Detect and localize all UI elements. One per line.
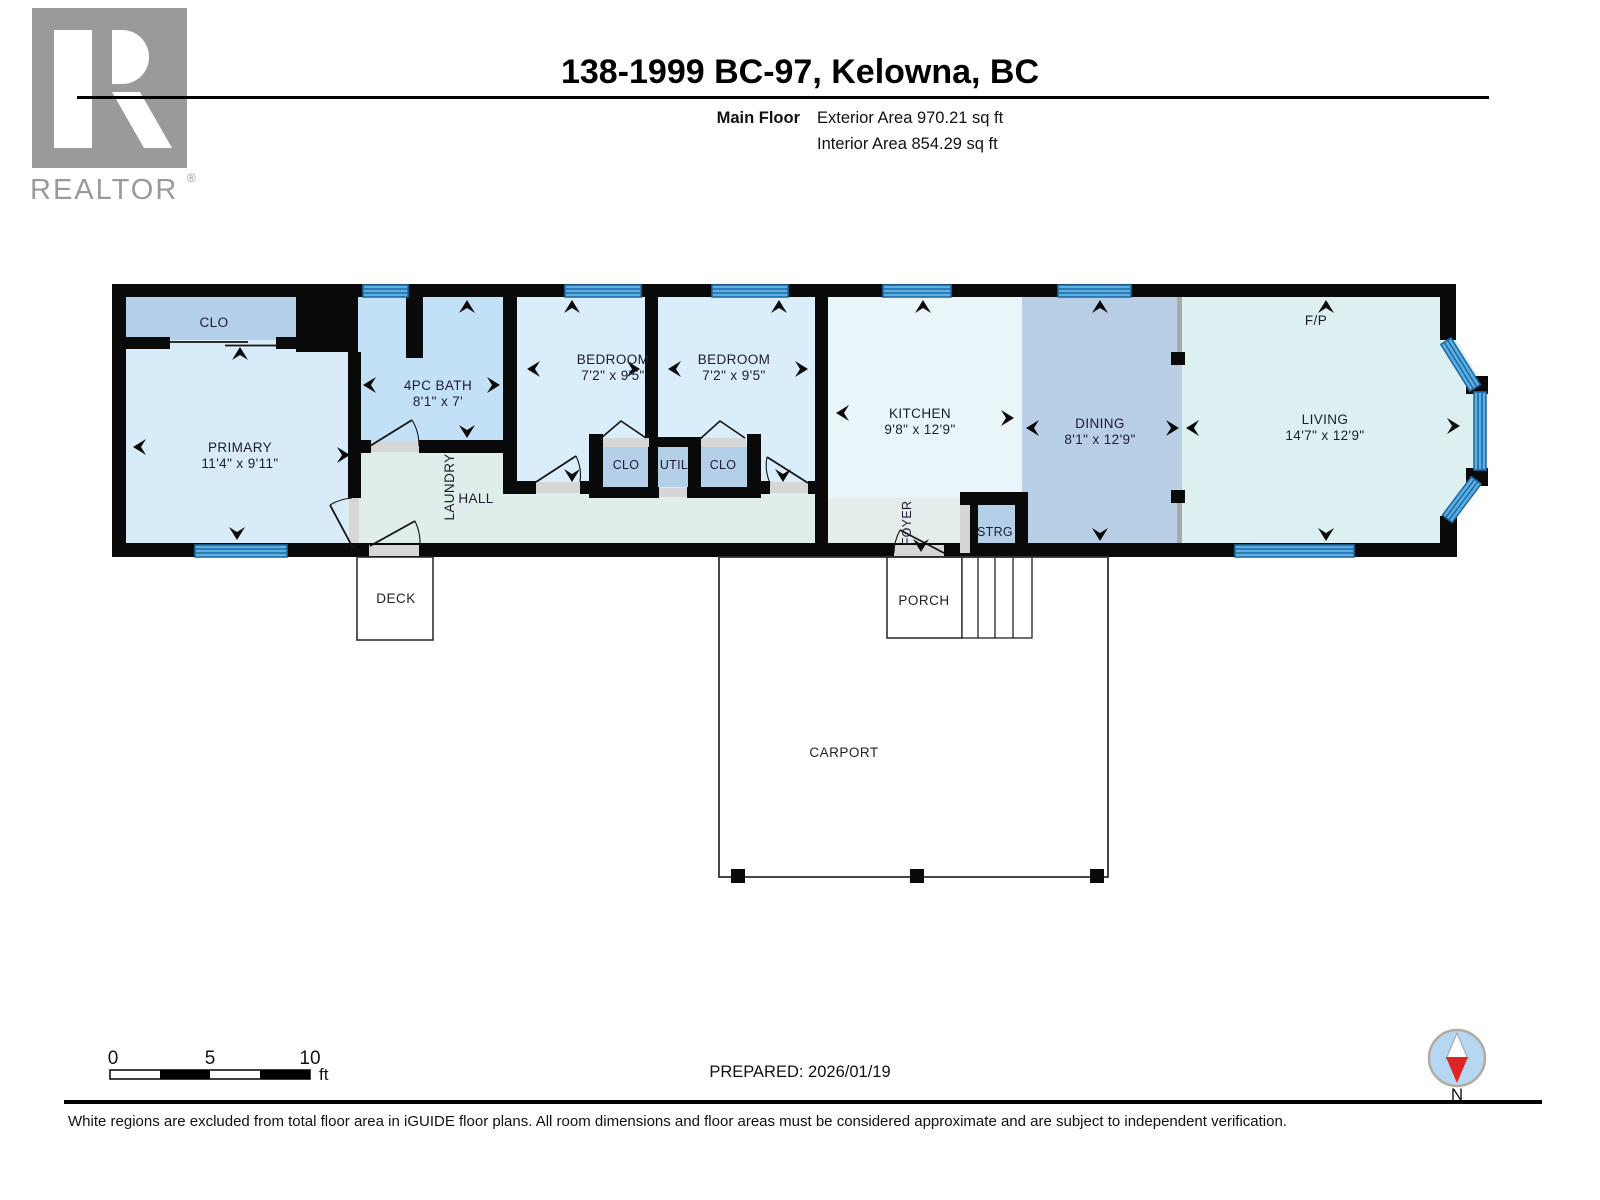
wall-segment xyxy=(419,440,503,453)
room-dims-kitchen: 9'8" x 12'9" xyxy=(884,422,955,437)
outdoor-structures xyxy=(357,557,1108,883)
room-label-foyer: FOYER xyxy=(900,501,914,546)
wall-segment xyxy=(503,284,517,494)
room-label-util: UTIL xyxy=(660,458,688,472)
carport-label: CARPORT xyxy=(809,745,878,760)
room-fill-foyer xyxy=(828,498,962,545)
room-label-clo2: CLO xyxy=(710,458,737,472)
room-label-laundry: LAUNDRY xyxy=(442,453,457,520)
room-label-bedroom1: BEDROOM xyxy=(577,352,650,367)
wall-segment xyxy=(296,284,358,352)
column-line xyxy=(1177,503,1182,543)
bay-window xyxy=(1474,392,1486,470)
wall-segment xyxy=(348,352,361,498)
door-threshold xyxy=(369,545,419,556)
floorplan-page: REALTOR ® 138-1999 BC-97, Kelowna, BC Ma… xyxy=(0,0,1600,1200)
room-label-primary: PRIMARY xyxy=(208,440,272,455)
wall-segment xyxy=(1015,505,1028,557)
wall-post xyxy=(1171,490,1185,503)
scale-unit: ft xyxy=(319,1065,329,1084)
title-rule xyxy=(77,96,1489,99)
logo-registered-mark: ® xyxy=(187,171,196,185)
scale-bar-segment xyxy=(160,1070,210,1079)
interior-area: Interior Area 854.29 sq ft xyxy=(817,135,998,153)
door-threshold xyxy=(659,488,687,497)
scale-tick-0: 0 xyxy=(108,1048,119,1069)
room-label-clo1: CLO xyxy=(613,458,640,472)
scale-bar: 0 5 10 ft xyxy=(108,1048,329,1084)
wall-segment xyxy=(589,487,659,498)
wall-segment xyxy=(808,481,815,494)
wall-segment xyxy=(687,487,761,498)
wall-segment xyxy=(1440,284,1456,340)
post xyxy=(1090,869,1104,883)
window xyxy=(363,285,408,297)
footer-rule xyxy=(64,1100,1542,1104)
room-label-kitchen: KITCHEN xyxy=(889,406,951,421)
exterior-area: Exterior Area 970.21 sq ft xyxy=(817,109,1004,127)
stairs xyxy=(962,557,1032,638)
wall-segment xyxy=(276,337,298,349)
window xyxy=(1058,285,1131,297)
logo-brand: REALTOR xyxy=(30,174,178,206)
room-label-dining: DINING xyxy=(1075,416,1125,431)
door-threshold xyxy=(371,441,419,452)
window xyxy=(195,545,287,557)
room-label-clo-primary: CLO xyxy=(200,315,229,330)
scale-tick-10: 10 xyxy=(299,1048,320,1069)
door-threshold xyxy=(349,498,359,543)
window xyxy=(883,285,951,297)
door-threshold xyxy=(701,438,746,447)
room-label-strg: STRG xyxy=(977,525,1013,539)
floorplan-canvas: REALTOR ® 138-1999 BC-97, Kelowna, BC Ma… xyxy=(0,0,1600,1200)
room-dims-dining: 8'1" x 12'9" xyxy=(1064,432,1135,447)
scale-tick-5: 5 xyxy=(205,1048,216,1069)
post xyxy=(731,869,745,883)
window xyxy=(712,285,788,297)
realtor-logo-r-stem xyxy=(54,30,92,148)
room-dims-living: 14'7" x 12'9" xyxy=(1285,428,1364,443)
wall-segment xyxy=(358,440,371,453)
room-fill-bath xyxy=(358,290,506,442)
wall-segment xyxy=(406,296,423,358)
room-label-hall: HALL xyxy=(458,491,493,506)
room-label-bedroom2: BEDROOM xyxy=(698,352,771,367)
door-threshold xyxy=(770,482,808,493)
room-dims-bath: 8'1" x 7' xyxy=(413,394,463,409)
room-dims-bedroom1: 7'2" x 9'5" xyxy=(581,368,644,383)
window xyxy=(565,285,641,297)
room-dims-primary: 11'4" x 9'11" xyxy=(201,456,278,471)
compass: N xyxy=(1429,1030,1485,1104)
wall-segment xyxy=(1440,516,1457,557)
door-threshold xyxy=(536,482,580,493)
fireplace-label: F/P xyxy=(1305,313,1327,328)
post xyxy=(910,869,924,883)
header: REALTOR ® 138-1999 BC-97, Kelowna, BC Ma… xyxy=(30,8,1489,206)
deck-label: DECK xyxy=(376,591,416,606)
prepared-date: PREPARED: 2026/01/19 xyxy=(709,1063,890,1081)
wall-segment xyxy=(815,284,828,557)
scale-bar-segment xyxy=(260,1070,310,1079)
wall-segment xyxy=(126,337,170,349)
wall-segment xyxy=(960,492,1028,505)
carport-posts xyxy=(731,869,1104,883)
realtor-logo: REALTOR ® xyxy=(30,8,196,206)
footer: White regions are excluded from total fl… xyxy=(64,1100,1542,1130)
wall-segment xyxy=(112,284,126,557)
room-label-living: LIVING xyxy=(1302,412,1349,427)
page-title: 138-1999 BC-97, Kelowna, BC xyxy=(561,53,1039,91)
window xyxy=(1235,545,1354,557)
room-label-bath: 4PC BATH xyxy=(404,378,472,393)
door-threshold xyxy=(960,505,970,553)
wall-segment xyxy=(517,481,536,494)
column-line xyxy=(1177,297,1182,352)
door-threshold xyxy=(603,438,649,447)
room-dims-bedroom2: 7'2" x 9'5" xyxy=(702,368,765,383)
disclaimer-text: White regions are excluded from total fl… xyxy=(68,1113,1287,1130)
porch-label: PORCH xyxy=(898,593,949,608)
wall-post xyxy=(1171,352,1185,365)
floor-label: Main Floor xyxy=(717,109,801,127)
